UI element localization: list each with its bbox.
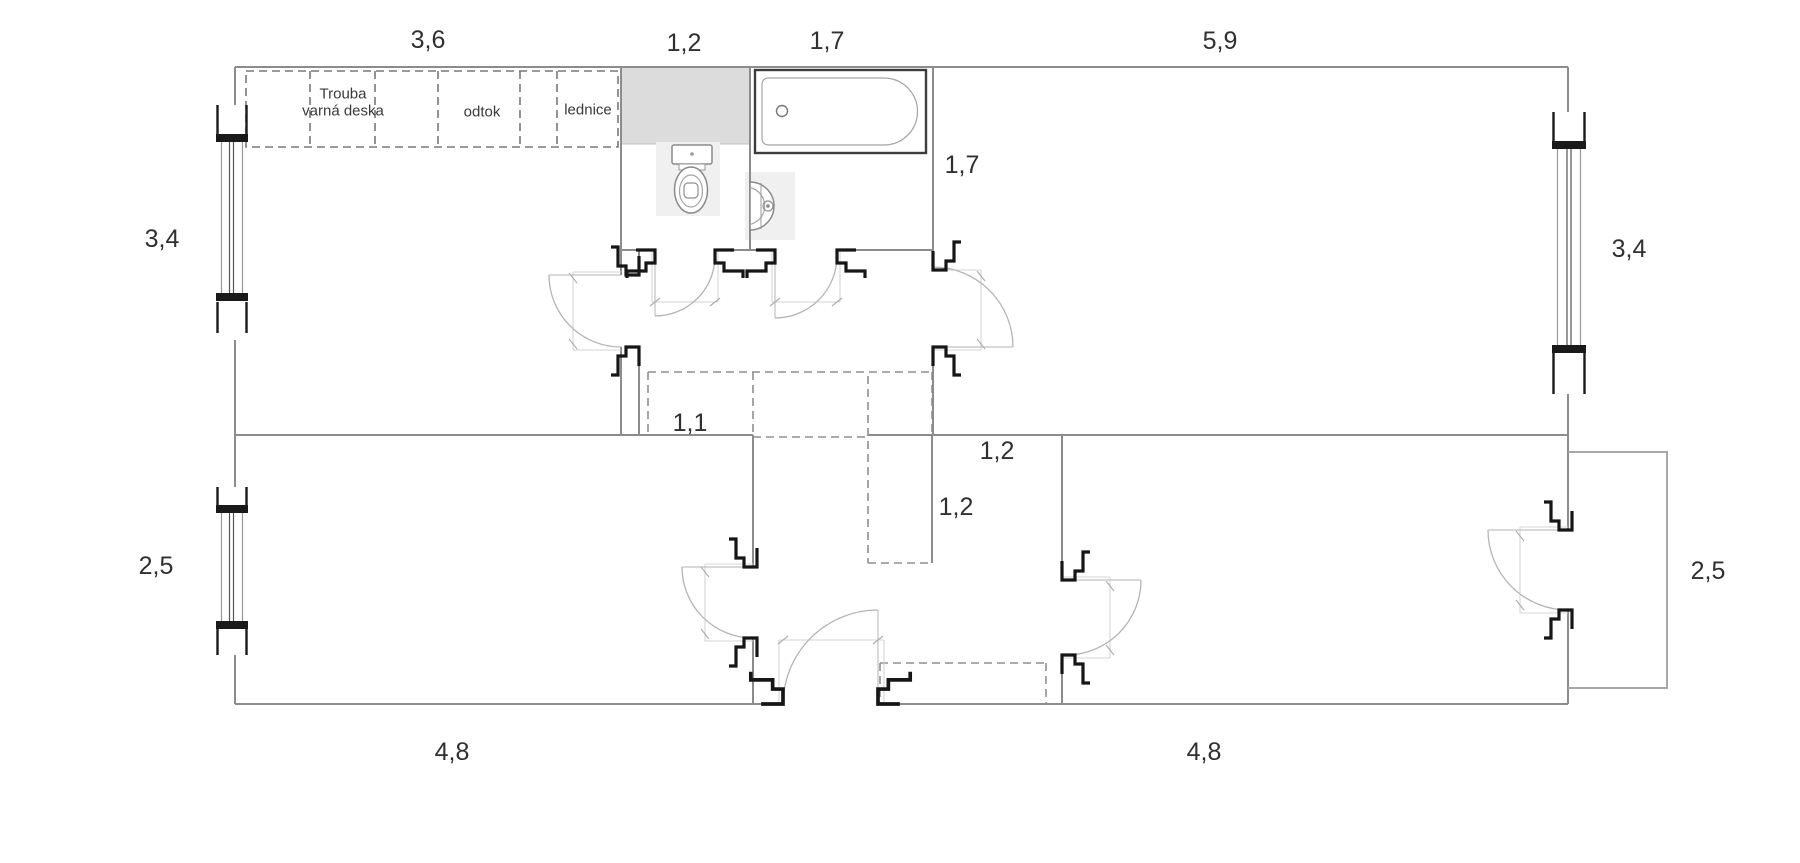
kitchen-hob-label: varná deska	[302, 103, 384, 120]
dim-lower-left-height: 2,5	[139, 552, 174, 580]
room-large	[933, 67, 1568, 435]
bathtub	[755, 70, 926, 153]
room-bedroom-right	[1062, 435, 1568, 704]
dim-bedroom-right-width: 4,8	[1187, 738, 1222, 766]
room-living-kitchen	[235, 67, 621, 435]
floor-plan-drawing: 3,6 1,2 1,7 5,9 1,7 3,4 3,4 1,1 1,2 1,2 …	[0, 0, 1800, 863]
wc-shower-area	[622, 68, 750, 144]
window-right	[1552, 112, 1586, 394]
dim-hall-opening-depth: 1,2	[939, 493, 974, 521]
kitchen-oven-label: Trouba	[320, 86, 368, 103]
kitchen-drain-label: odtok	[464, 104, 501, 121]
kitchen-fridge-label: lednice	[564, 102, 612, 119]
dim-corridor-width: 1,1	[673, 409, 708, 437]
dim-hall-opening-width: 1,2	[980, 437, 1015, 465]
floor-plan-page: 3,6 1,2 1,7 5,9 1,7 3,4 3,4 1,1 1,2 1,2 …	[0, 0, 1800, 863]
dim-bathroom-width: 1,7	[810, 27, 845, 55]
dim-lower-right-height: 2,5	[1691, 557, 1726, 585]
dim-large-room-width: 5,9	[1203, 27, 1238, 55]
dim-bathroom-depth: 1,7	[945, 151, 980, 179]
dim-bedroom-left-width: 4,8	[435, 738, 470, 766]
room-bedroom-left	[235, 435, 753, 704]
dim-upper-left-height: 3,4	[145, 225, 180, 253]
dim-wc-width: 1,2	[667, 29, 702, 57]
room-hallway	[621, 250, 933, 435]
dim-upper-right-height: 3,4	[1612, 235, 1647, 263]
dim-kitchen-width: 3,6	[411, 26, 446, 54]
balcony	[1568, 452, 1667, 688]
